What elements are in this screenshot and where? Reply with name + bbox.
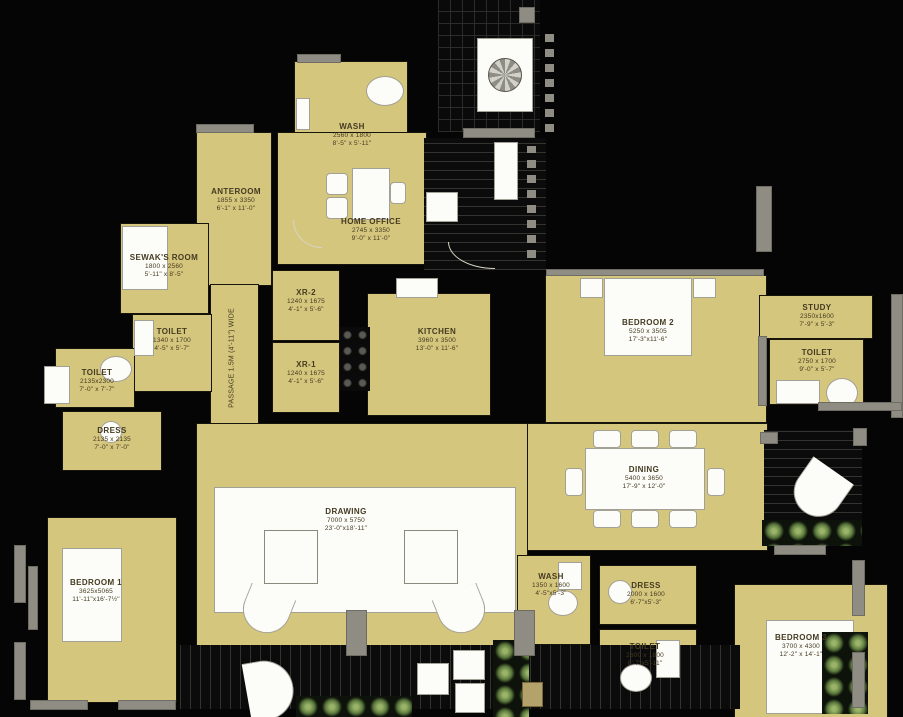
room-name: BEDROOM 1 [70, 578, 122, 588]
wall-segment [14, 642, 26, 700]
planter-bottom-icon [296, 696, 412, 717]
wall-segment [756, 186, 772, 252]
room-dim-mm: 1855 x 3350 [211, 197, 261, 205]
room-dim-mm: 1800 x 2560 [130, 263, 198, 271]
room-name: KITCHEN [416, 327, 459, 337]
room-dim-ft: 23'-0"x18'-11" [325, 525, 367, 533]
wall-segment [774, 545, 826, 555]
wall-segment [28, 566, 38, 630]
room-name: DRAWING [325, 507, 367, 517]
room-name: TOILET [79, 368, 114, 378]
wall-segment [546, 269, 764, 276]
wall-segment [852, 560, 865, 616]
room-label-study: STUDY 2350x1600 7'-9" x 5'-3" [799, 303, 834, 329]
room-dim-mm: 2000 x 1600 [627, 591, 665, 599]
room-dim-ft: 9'-0" x 5'-7" [798, 366, 836, 374]
chair-icon [326, 197, 348, 219]
wall-segment [818, 402, 902, 411]
coffee-table-icon [404, 530, 458, 584]
room-dim-ft: 4'-1" x 5'-6" [287, 306, 325, 314]
room-dim-ft: 5'-11" x 8'-5" [130, 271, 198, 279]
room-dim-ft: 6'-1" x 11'-0" [211, 205, 261, 213]
room-label-toilet-d: TOILET 2600 x 1800 8'-7"x5'-11" [626, 642, 664, 668]
wall-segment [514, 610, 535, 656]
room-label-bedroom1: BEDROOM 1 3625x5065 11'-11"x16'-7½" [70, 578, 122, 604]
door-icon [44, 366, 70, 404]
room-dim-mm: 2745 x 3350 [341, 227, 401, 235]
outdoor-table-icon [417, 663, 449, 695]
room-label-xr2: XR-2 1240 x 1675 4'-1" x 5'-6" [287, 288, 325, 314]
planter-box-icon [522, 682, 543, 707]
room-label-home-office: HOME OFFICE 2745 x 3350 9'-0" x 11'-0" [341, 217, 401, 243]
wall-segment [30, 700, 88, 710]
room-dim-ft: 17'-3"x11'-6" [622, 336, 674, 344]
room-dim-mm: 5250 x 3505 [622, 328, 674, 336]
room-name: BEDROOM 2 [622, 318, 674, 328]
room-dim-mm: 2350x1600 [799, 313, 834, 321]
chair-icon [631, 510, 659, 528]
room-dim-ft: 7'-0" x 7'-7" [79, 386, 114, 394]
wall-segment [346, 610, 367, 656]
wall-segment [519, 7, 535, 23]
room-dim-mm: 1340 x 1700 [153, 337, 191, 345]
wall-segment [760, 432, 778, 444]
room-dim-mm: 3700 x 4300 [775, 643, 827, 651]
wall-segment [463, 128, 535, 138]
room-label-dining: DINING 5400 x 3650 17'-9" x 12'-0" [623, 465, 666, 491]
room-dim-ft: 4'-1" x 5'-6" [287, 378, 325, 386]
room-name: TOILET [798, 348, 836, 358]
wall-segment [196, 124, 254, 133]
kitchen-sink-icon [396, 278, 438, 298]
chair-icon [565, 468, 583, 496]
room-name: SEWAK'S ROOM [130, 253, 198, 263]
washing-machine-drum-icon [488, 58, 522, 92]
room-label-sewak: SEWAK'S ROOM 1800 x 2560 5'-11" x 8'-5" [130, 253, 198, 279]
room-label-dress-a: DRESS 2135 x 2135 7'-0" x 7'-0" [93, 426, 131, 452]
room-name: XR-2 [287, 288, 325, 298]
chair-icon [593, 510, 621, 528]
room-dim-mm: 3960 x 3500 [416, 337, 459, 345]
room-label-bedroom3: BEDROOM 3 3700 x 4300 12'-2" x 14'-1" [775, 633, 827, 659]
room-dim-mm: 1240 x 1675 [287, 298, 325, 306]
room-label-dress-b: DRESS 2000 x 1600 6'-7"x5'-3" [627, 581, 665, 607]
room-label-drawing: DRAWING 7000 x 5750 23'-0"x18'-11" [325, 507, 367, 533]
outdoor-chair-icon [453, 650, 485, 680]
room-label-wash-top: WASH 2560 x 1800 8'-5" x 5'-11" [333, 122, 372, 148]
wall-segment [853, 428, 867, 446]
coffee-table-icon [264, 530, 318, 584]
room-dim-mm: 2135 x 2135 [93, 436, 131, 444]
column-dots-top [545, 34, 554, 132]
room-dim-mm: 1350 x 1600 [532, 582, 570, 590]
room-name: TOILET [626, 642, 664, 652]
wall-segment [852, 652, 865, 708]
room-name: ANTEROOM [211, 187, 261, 197]
room-dim-mm: 2560 x 1800 [333, 132, 372, 140]
passage-label: PASSAGE 1.5M (4'-11") WIDE [229, 308, 238, 408]
room-dim-ft: 13'-0" x 11'-6" [416, 345, 459, 353]
washbasin-icon [134, 320, 154, 356]
office-chair-icon [390, 182, 406, 204]
room-dim-mm: 1240 x 1675 [287, 370, 325, 378]
room-dim-ft: 6'-7"x5'-3" [627, 599, 665, 607]
room-dim-ft: 9'-0" x 11'-0" [341, 235, 401, 243]
wall-segment [758, 336, 767, 406]
room-kitchen [368, 294, 490, 415]
door-icon [296, 98, 310, 130]
room-label-xr1: XR-1 1240 x 1675 4'-1" x 5'-6" [287, 360, 325, 386]
side-table-icon [693, 278, 716, 298]
wall-segment [891, 294, 903, 418]
wall-segment [118, 700, 176, 710]
room-label-anteroom: ANTEROOM 1855 x 3350 6'-1" x 11'-0" [211, 187, 261, 213]
room-dim-mm: 5400 x 3650 [623, 475, 666, 483]
room-label-toilet-a: TOILET 1340 x 1700 4'-5" x 5'-7" [153, 327, 191, 353]
toilet-icon [620, 664, 652, 692]
room-label-toilet-c: TOILET 2750 x 1700 9'-0" x 5'-7" [798, 348, 836, 374]
room-dim-mm: 2135x2300 [79, 378, 114, 386]
room-name: DINING [623, 465, 666, 475]
room-name: XR-1 [287, 360, 325, 370]
side-table-icon [580, 278, 603, 298]
passage-label-text: PASSAGE 1.5M (4'-11") WIDE [229, 308, 238, 408]
room-name: HOME OFFICE [341, 217, 401, 227]
room-dim-mm: 3625x5065 [70, 588, 122, 596]
room-name: STUDY [799, 303, 834, 313]
chair-icon [669, 510, 697, 528]
room-name: TOILET [153, 327, 191, 337]
room-label-toilet-b: TOILET 2135x2300 7'-0" x 7'-7" [79, 368, 114, 394]
room-name: WASH [532, 572, 570, 582]
chair-icon [669, 430, 697, 448]
room-label-kitchen: KITCHEN 3960 x 3500 13'-0" x 11'-6" [416, 327, 459, 353]
room-dim-mm: 7000 x 5750 [325, 517, 367, 525]
room-name: DRESS [627, 581, 665, 591]
wall-segment [14, 545, 26, 603]
desk-icon [352, 168, 390, 220]
room-name: DRESS [93, 426, 131, 436]
room-dim-ft: 4'-5"x5'-3" [532, 590, 570, 598]
room-dim-mm: 2750 x 1700 [798, 358, 836, 366]
room-dim-ft: 7'-0" x 7'-0" [93, 444, 131, 452]
room-label-bedroom2: BEDROOM 2 5250 x 3505 17'-3"x11'-6" [622, 318, 674, 344]
room-dim-ft: 11'-11"x16'-7½" [70, 596, 122, 604]
planter-right-icon [762, 520, 862, 546]
wall-segment [297, 54, 341, 63]
chair-icon [707, 468, 725, 496]
stove-icon [340, 327, 370, 391]
room-dim-ft: 17'-9" x 12'-0" [623, 483, 666, 491]
room-dim-ft: 7'-9" x 5'-3" [799, 321, 834, 329]
toilet-icon [366, 76, 404, 106]
room-label-wash-b: WASH 1350 x 1600 4'-5"x5'-3" [532, 572, 570, 598]
outdoor-chair-icon [455, 683, 485, 713]
room-dim-ft: 12'-2" x 14'-1" [775, 651, 827, 659]
room-dim-mm: 2600 x 1800 [626, 652, 664, 660]
room-dim-ft: 8'-7"x5'-11" [626, 660, 664, 668]
room-dim-ft: 8'-5" x 5'-11" [333, 140, 372, 148]
room-dim-ft: 4'-5" x 5'-7" [153, 345, 191, 353]
column-dots-foyer [527, 146, 536, 258]
chair-icon [593, 430, 621, 448]
cabinet-icon [426, 192, 458, 222]
room-name: BEDROOM 3 [775, 633, 827, 643]
floor-plan-canvas: WASH 2560 x 1800 8'-5" x 5'-11" ANTEROOM… [0, 0, 903, 717]
washbasin-icon [776, 380, 820, 404]
room-name: WASH [333, 122, 372, 132]
chair-icon [631, 430, 659, 448]
chair-icon [326, 173, 348, 195]
console-icon [494, 142, 518, 200]
